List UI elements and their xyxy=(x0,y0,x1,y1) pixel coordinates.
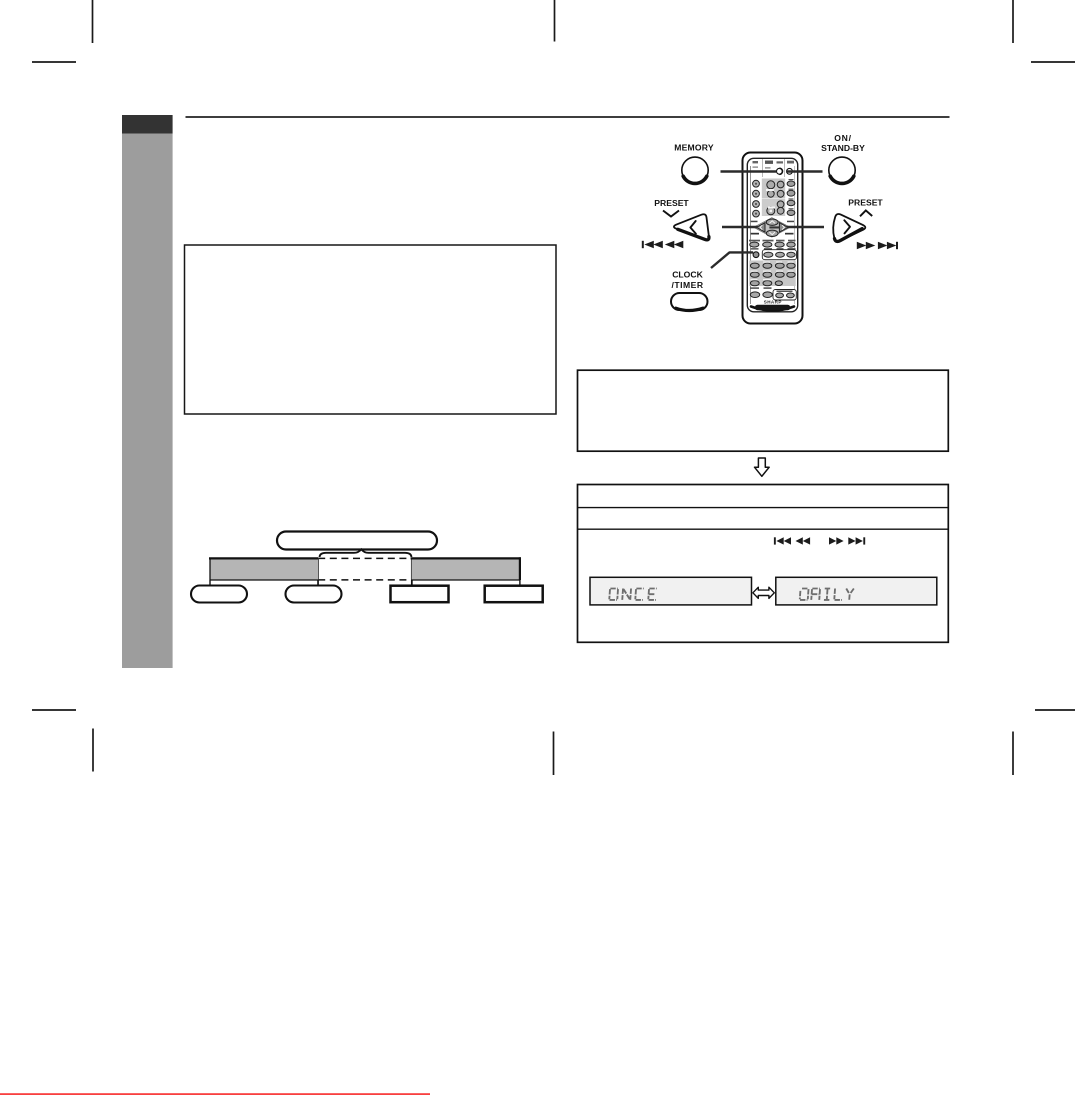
svg-text:STAND-BY: STAND-BY xyxy=(821,143,865,153)
svg-text:PRESET: PRESET xyxy=(848,198,883,208)
svg-text:PRESET: PRESET xyxy=(654,198,689,208)
svg-text:CLOCK: CLOCK xyxy=(672,270,703,280)
svg-text:SHARP: SHARP xyxy=(764,299,782,304)
svg-text:ON/: ON/ xyxy=(834,133,851,143)
svg-text:/TIMER: /TIMER xyxy=(671,280,703,290)
svg-text:MEMORY: MEMORY xyxy=(674,143,714,153)
